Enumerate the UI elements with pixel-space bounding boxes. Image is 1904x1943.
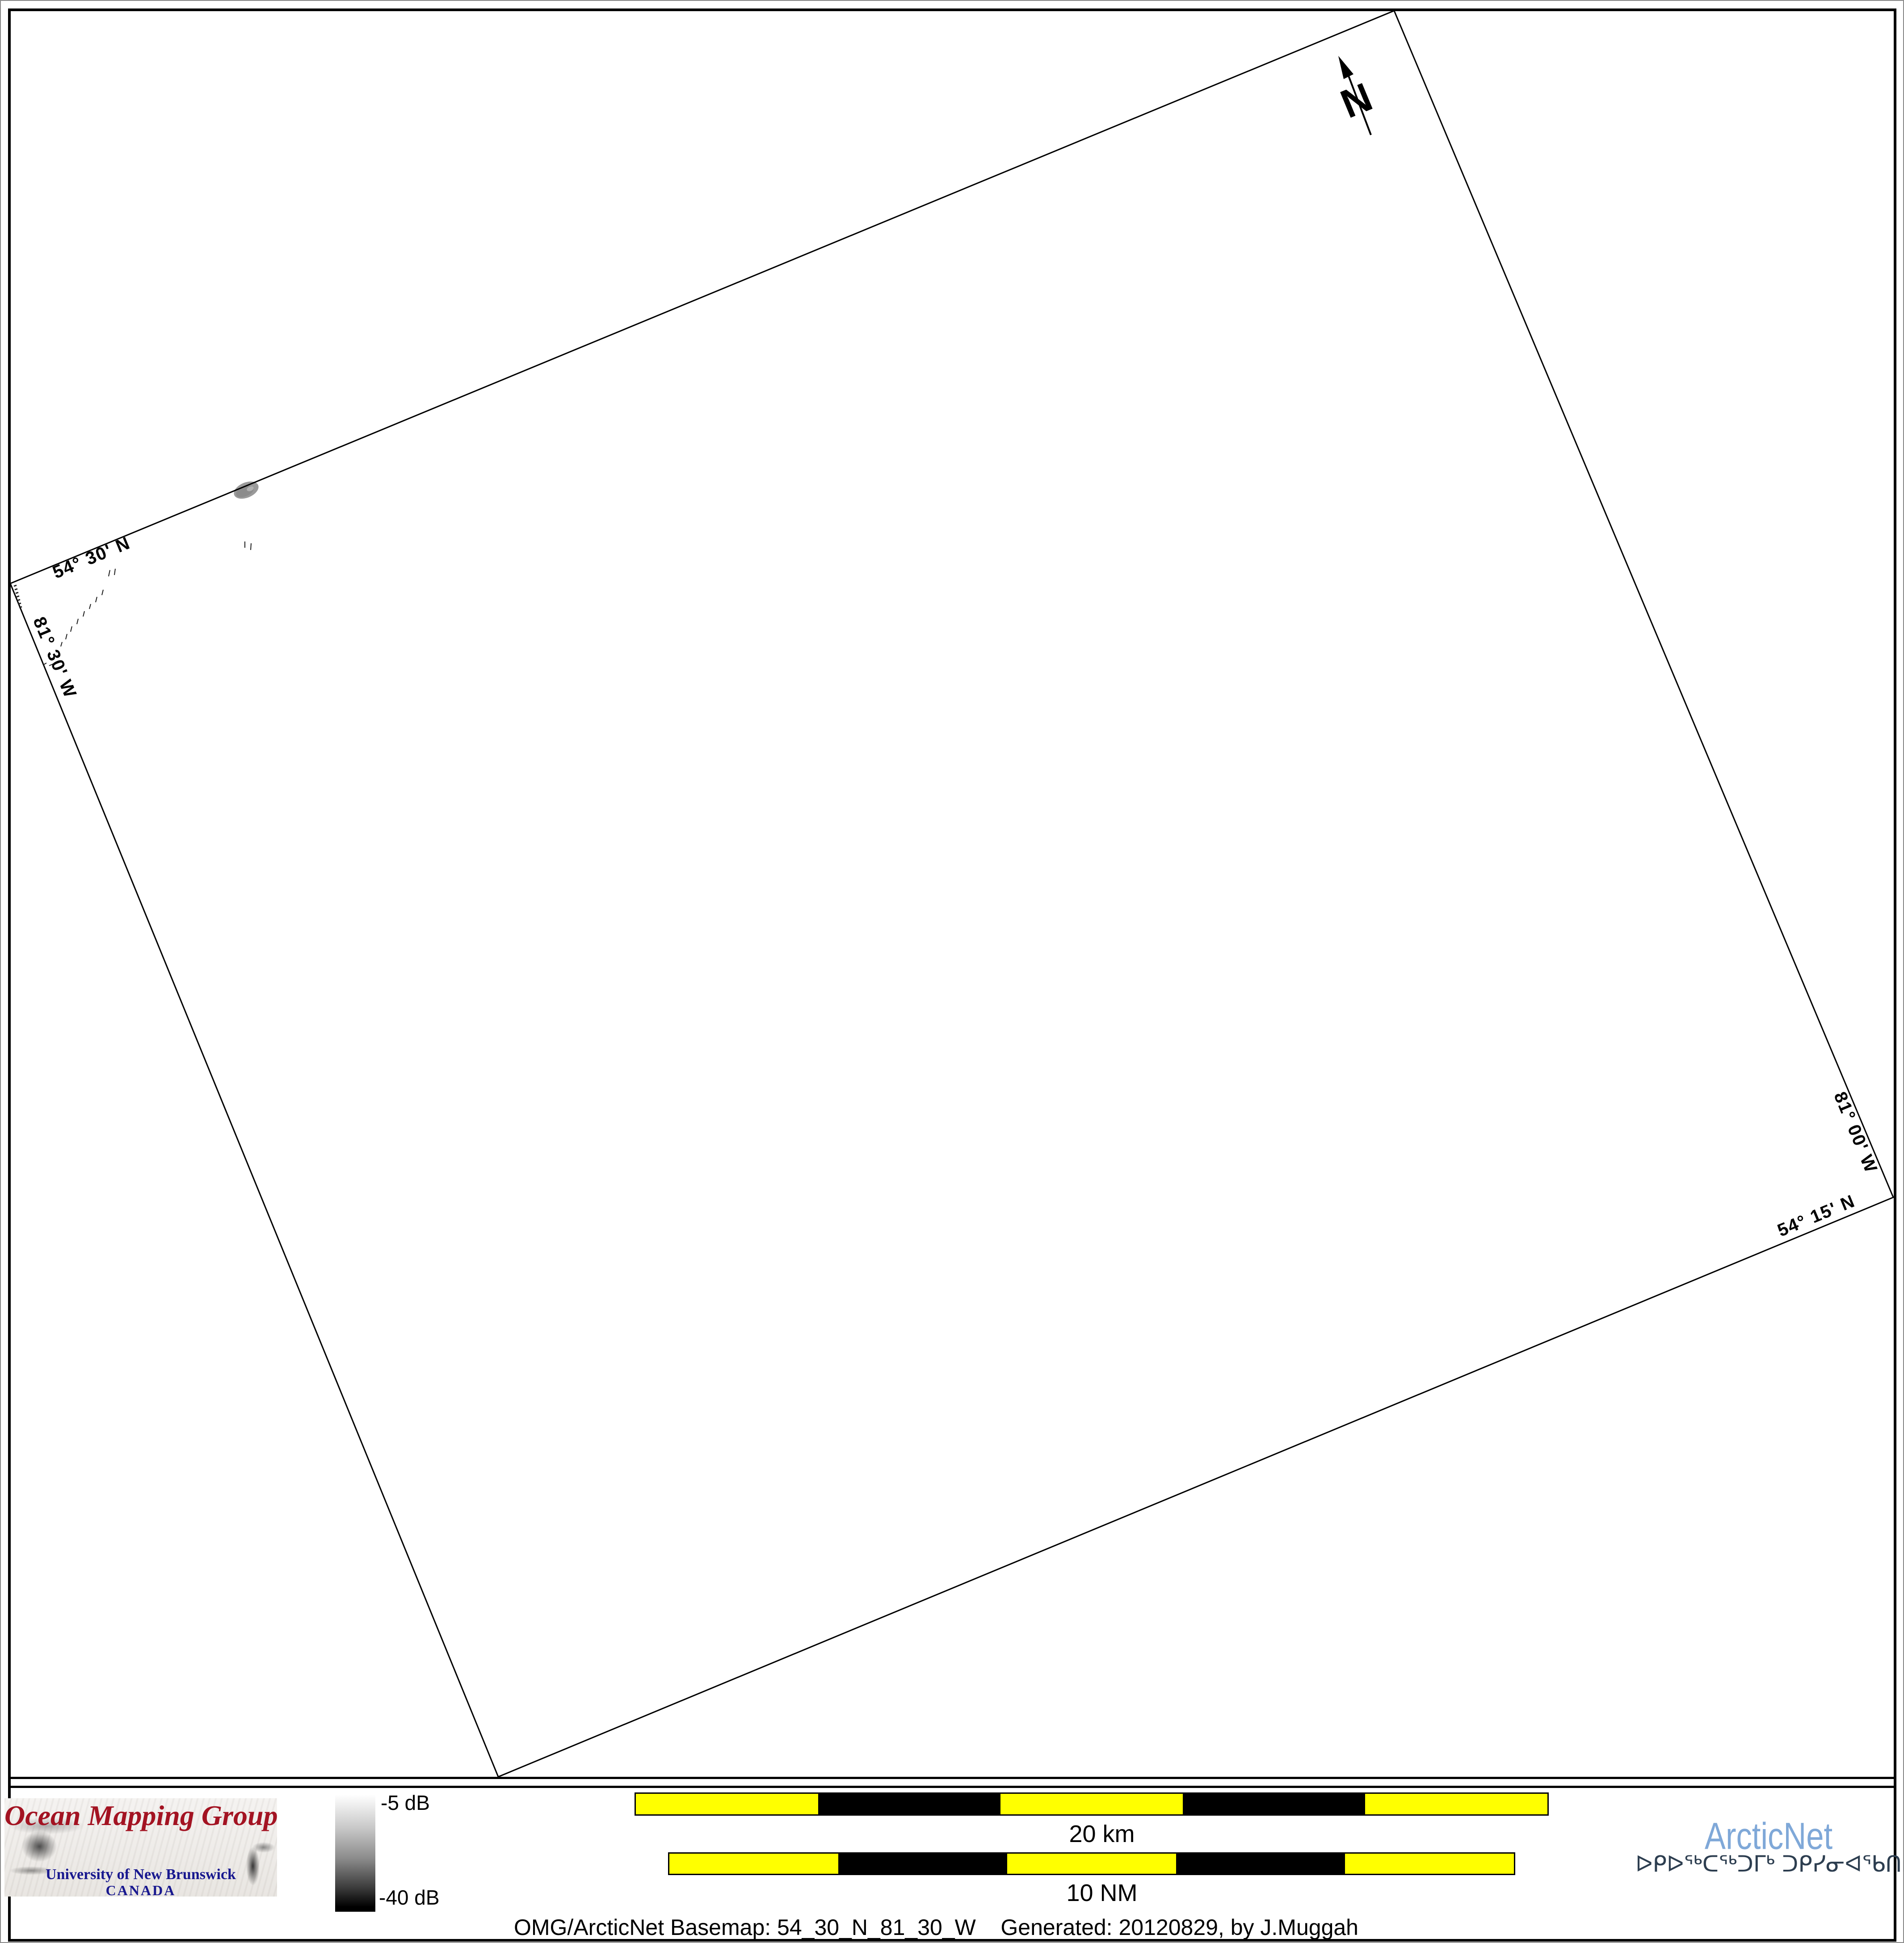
omg-logo-title: Ocean Mapping Group xyxy=(4,1799,277,1832)
omg-logo: Ocean Mapping Group University of New Br… xyxy=(4,1798,277,1897)
scalebar-nm xyxy=(668,1852,1515,1875)
scalebar-segment xyxy=(818,1794,1000,1814)
survey-area-quad xyxy=(10,11,1893,1777)
scalebar-km xyxy=(635,1792,1549,1816)
scalebar-segment xyxy=(1345,1854,1514,1874)
scalebar-segment xyxy=(1000,1794,1183,1814)
map-canvas xyxy=(0,0,1904,1943)
omg-logo-country: CANADA xyxy=(4,1882,277,1897)
backscatter-colorbar xyxy=(335,1795,375,1912)
scalebar-segment xyxy=(838,1854,1007,1874)
scalebar-segment xyxy=(1007,1854,1176,1874)
arcticnet-inuktitut-tagline: ᐅᑭᐅᖅᑕᖅᑐᒥᒃ ᑐᑭᓯᓂᐊᖃᑎᒌᑦ xyxy=(1635,1851,1904,1877)
colorbar-min-label: -40 dB xyxy=(379,1885,440,1909)
scalebar-segment xyxy=(1365,1794,1547,1814)
scalebar-nm-label: 10 NM xyxy=(990,1879,1214,1907)
omg-logo-institution: University of New Brunswick xyxy=(4,1866,277,1883)
scalebar-segment xyxy=(1183,1794,1365,1814)
basemap-page: 54° 30' N 81° 30' W 81° 00' W 54° 15' N … xyxy=(0,0,1904,1943)
scalebar-segment xyxy=(1176,1854,1345,1874)
scalebar-segment xyxy=(669,1854,838,1874)
basemap-caption: OMG/ArcticNet Basemap: 54_30_N_81_30_W G… xyxy=(514,1914,1358,1940)
footer-separator-lower xyxy=(8,1786,1896,1788)
scalebar-km-label: 20 km xyxy=(990,1820,1214,1848)
scalebar-segment xyxy=(636,1794,818,1814)
colorbar-max-label: -5 dB xyxy=(381,1791,430,1815)
footer-separator-upper xyxy=(8,1777,1896,1779)
